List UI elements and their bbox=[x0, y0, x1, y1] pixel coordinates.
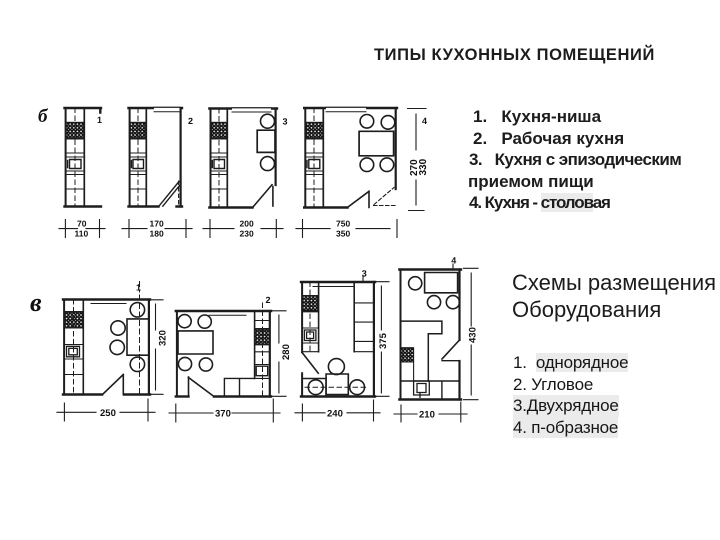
svg-text:170: 170 bbox=[150, 219, 164, 229]
svg-text:180: 180 bbox=[150, 229, 164, 239]
svg-text:2: 2 bbox=[188, 116, 193, 126]
svg-text:750: 750 bbox=[336, 219, 350, 229]
svg-text:3: 3 bbox=[362, 268, 367, 278]
svg-text:330: 330 bbox=[418, 158, 429, 175]
svg-text:230: 230 bbox=[240, 229, 254, 239]
svg-text:2: 2 bbox=[266, 295, 271, 305]
svg-text:4: 4 bbox=[451, 255, 456, 265]
svg-text:1: 1 bbox=[97, 115, 102, 125]
svg-text:3: 3 bbox=[283, 117, 288, 127]
svg-text:430: 430 bbox=[468, 327, 479, 343]
svg-text:240: 240 bbox=[327, 408, 343, 419]
svg-text:70: 70 bbox=[77, 219, 87, 229]
svg-text:1: 1 bbox=[136, 283, 141, 293]
svg-text:350: 350 bbox=[336, 229, 350, 239]
svg-text:375: 375 bbox=[378, 332, 389, 349]
svg-text:4: 4 bbox=[422, 116, 427, 126]
svg-text:110: 110 bbox=[75, 229, 89, 239]
svg-text:370: 370 bbox=[215, 409, 231, 420]
svg-text:210: 210 bbox=[419, 410, 435, 421]
svg-text:320: 320 bbox=[158, 330, 169, 346]
svg-text:200: 200 bbox=[240, 219, 254, 229]
svg-text:250: 250 bbox=[100, 408, 116, 419]
svg-text:280: 280 bbox=[281, 344, 292, 360]
